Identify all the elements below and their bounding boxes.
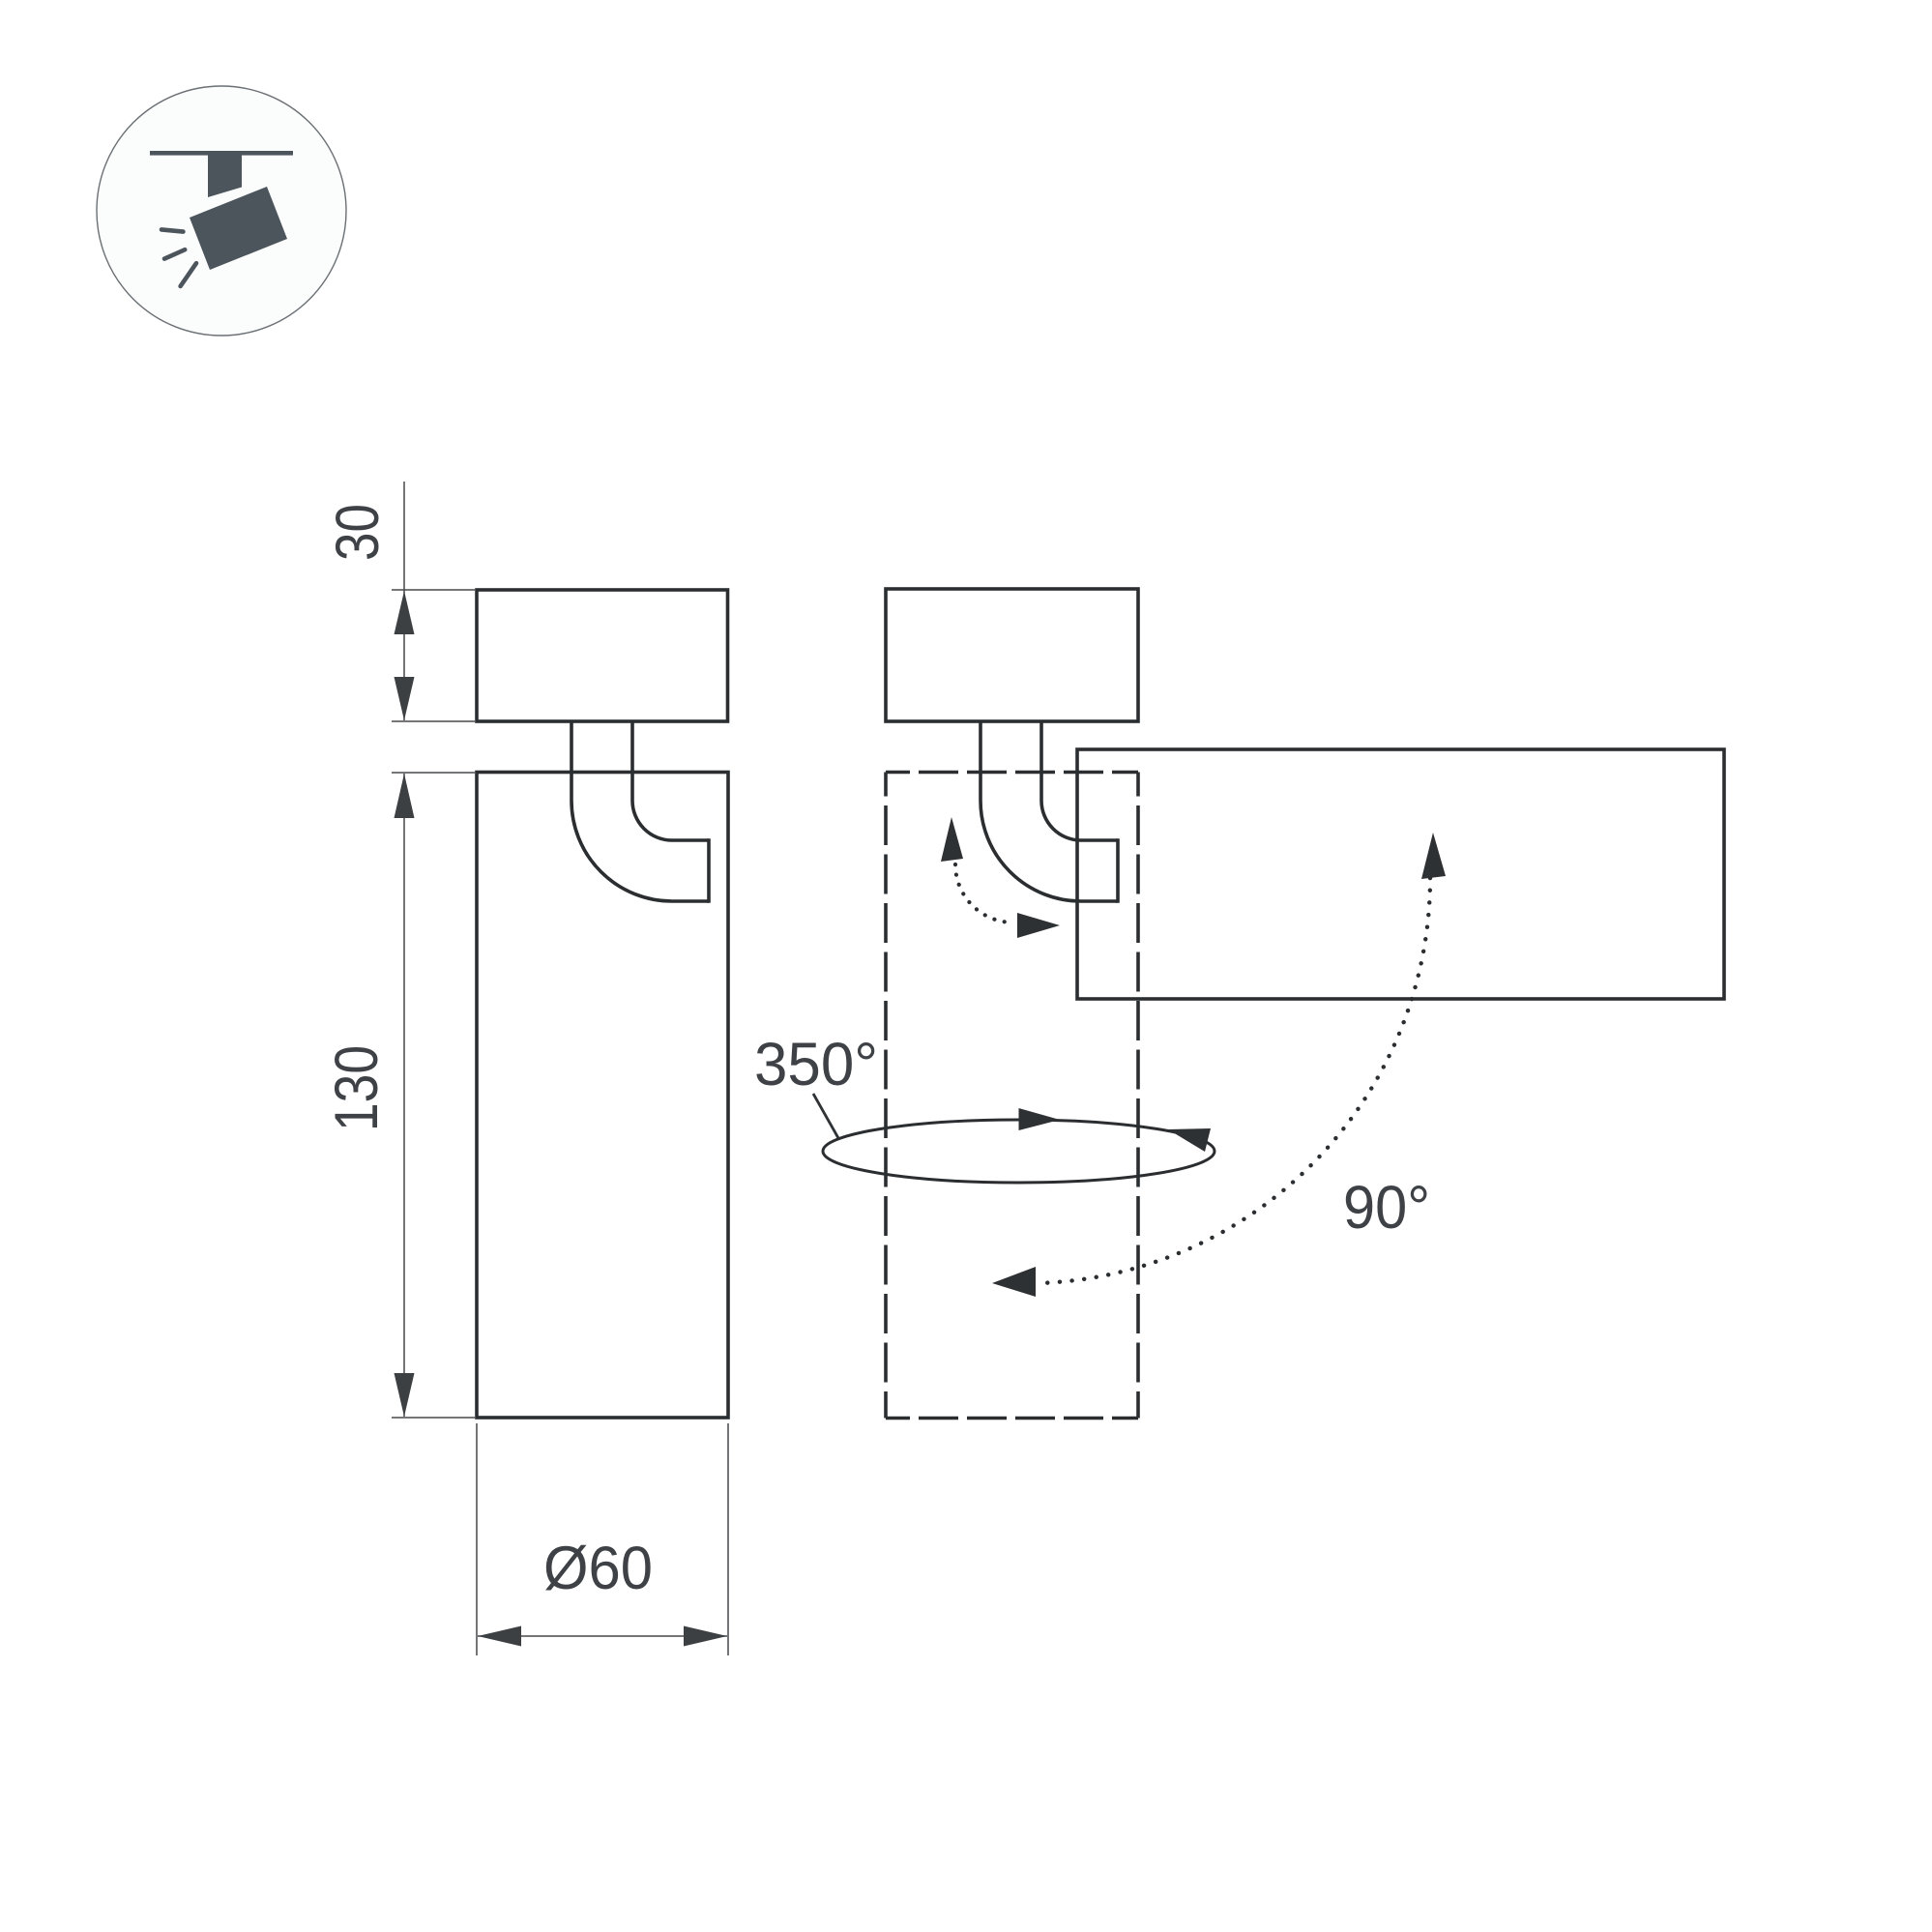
svg-text:Ø60: Ø60 [543, 1535, 653, 1602]
svg-text:90°: 90° [1343, 1174, 1430, 1242]
svg-text:30: 30 [324, 504, 392, 561]
svg-text:130: 130 [323, 1045, 391, 1131]
svg-text:350°: 350° [754, 1031, 878, 1098]
